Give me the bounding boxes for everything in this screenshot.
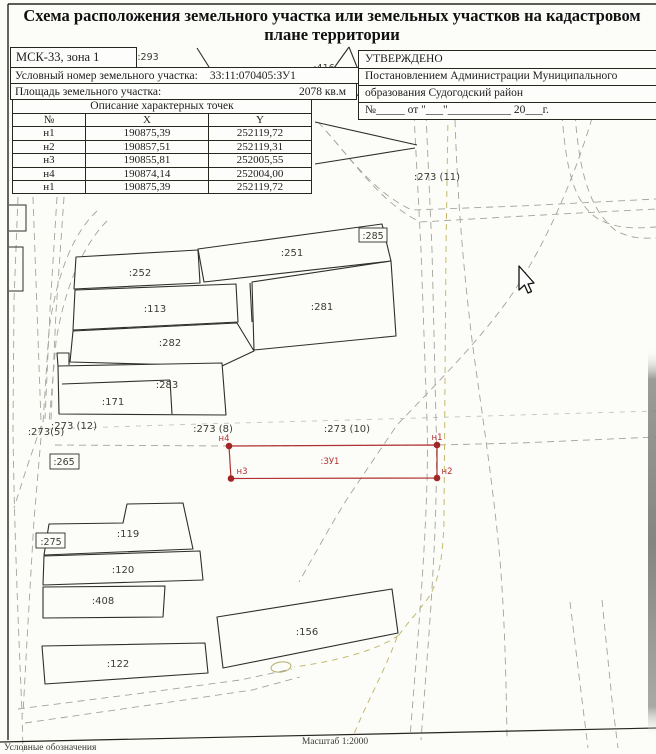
cell-y: 252119,72 — [209, 127, 311, 139]
approval-line3: №_____ от "___"___________ 20___г. — [359, 103, 656, 119]
parcel-label-119: :119 — [117, 529, 139, 540]
table-row: н1 190875,39 252119,72 — [13, 126, 311, 139]
approval-block: УТВЕРЖДЕНО Постановлением Администрации … — [358, 50, 656, 120]
parcel-label-281: :281 — [311, 302, 333, 313]
parcel-label-285: :285 — [362, 231, 383, 242]
cell-point: н3 — [13, 154, 86, 166]
coordinate-system-label: МСК-33, зона 1 — [16, 50, 99, 65]
table-row: н3 190855,81 252005,55 — [13, 153, 311, 166]
col-header-num: № — [13, 114, 86, 126]
area-label: Площадь земельного участка: — [15, 86, 161, 98]
parcel-label-293: :293 — [137, 52, 158, 63]
approval-line1: Постановлением Администрации Муниципальн… — [359, 69, 656, 86]
page-title-line2: плане территории — [8, 25, 656, 44]
parcel-label-275: :275 — [40, 537, 61, 548]
scan-edge-shadow — [648, 348, 656, 738]
coordinate-system-box: МСК-33, зона 1 — [10, 47, 137, 68]
cadastral-plan-page: :293 :416 :285 :252 :251 :113 :281 :282 … — [0, 0, 656, 754]
parcel-label-171: :171 — [102, 397, 124, 408]
table-row: н1 190875,39 252119,72 — [13, 180, 311, 193]
top-wedge-lines — [315, 122, 417, 164]
page-title: Схема расположения земельного участка ил… — [8, 6, 656, 44]
parcel-label-113: :113 — [144, 304, 166, 315]
map-scale: Масштаб 1:2000 — [270, 737, 400, 747]
parcel-label-252: :252 — [129, 268, 151, 279]
approval-line2: образования Судогодский район — [359, 86, 656, 103]
parcel-label-408: :408 — [92, 596, 114, 607]
point-label-n2: н2 — [442, 467, 453, 477]
point-label-n1: н1 — [432, 433, 443, 443]
cadastral-number-label: Условный номер земельного участка: — [15, 70, 198, 82]
page-title-line1: Схема расположения земельного участка ил… — [8, 6, 656, 25]
points-table-title: Описание характерных точек — [13, 100, 311, 114]
cell-x: 190875,39 — [86, 127, 209, 139]
table-row: н2 190857,51 252119,31 — [13, 140, 311, 153]
parcel-label-251: :251 — [281, 248, 303, 259]
area-value: 2078 кв.м — [299, 86, 346, 98]
col-header-x: X — [86, 114, 209, 126]
cadastral-number-value: 33:11:070405:ЗУ1 — [210, 70, 296, 82]
subject-parcel-zu1: н4 н1 н3 н2 :ЗУ1 — [219, 433, 453, 482]
parcel-label-273-10: :273 (10) — [324, 424, 370, 435]
subject-parcel-label: :ЗУ1 — [321, 457, 340, 467]
cell-y: 252005,55 — [209, 154, 311, 166]
cell-y: 252119,31 — [209, 141, 311, 153]
parcel-171-283 — [58, 363, 226, 415]
area-row: Площадь земельного участка: 2078 кв.м — [10, 83, 357, 100]
point-label-n3: н3 — [237, 467, 248, 477]
cadastral-number-row: Условный номер земельного участка: 33:11… — [10, 67, 362, 84]
cell-x: 190875,39 — [86, 181, 209, 193]
cell-x: 190874,14 — [86, 168, 209, 180]
points-table-header: № X Y — [13, 114, 311, 126]
left-edge-parcels — [9, 205, 26, 291]
cell-point: н2 — [13, 141, 86, 153]
parcel-label-273-5: :273(5) — [28, 427, 65, 438]
mouse-cursor — [519, 266, 534, 293]
cell-y: 252119,72 — [209, 181, 311, 193]
point-n2 — [434, 475, 441, 482]
parcel-171-notch — [57, 353, 69, 366]
legend-title: Условные обозначения — [4, 743, 96, 753]
table-row: н4 190874,14 252004,00 — [13, 167, 311, 180]
cell-x: 190855,81 — [86, 154, 209, 166]
points-table: Описание характерных точек № X Y н1 1908… — [12, 99, 312, 194]
cell-point: н1 — [13, 181, 86, 193]
cell-y: 252004,00 — [209, 168, 311, 180]
parcel-label-282: :282 — [159, 338, 181, 349]
cell-x: 190857,51 — [86, 141, 209, 153]
parcel-label-122: :122 — [107, 659, 129, 670]
cell-point: н4 — [13, 168, 86, 180]
point-label-n4: н4 — [219, 434, 230, 444]
col-header-y: Y — [209, 114, 311, 126]
parcel-label-273-11: :273 (11) — [414, 172, 460, 183]
parcel-label-120: :120 — [112, 565, 134, 576]
cell-point: н1 — [13, 127, 86, 139]
parcel-label-156: :156 — [296, 627, 318, 638]
parcel-label-283: :283 — [156, 380, 178, 391]
parcel-label-265: :265 — [53, 457, 74, 468]
approval-title: УТВЕРЖДЕНО — [359, 51, 656, 69]
point-n3 — [228, 475, 235, 482]
